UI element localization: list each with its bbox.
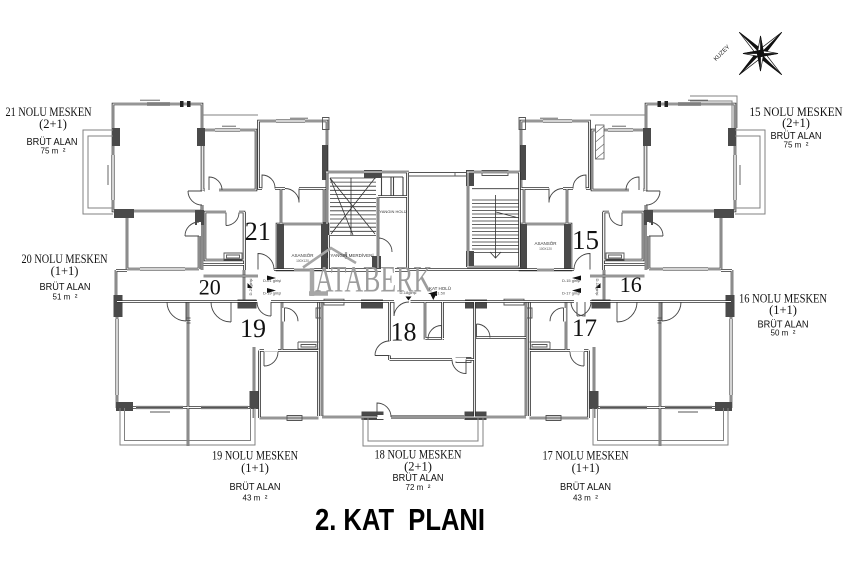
svg-text:15: 15 (572, 225, 599, 255)
svg-text:D-19 girişi: D-19 girişi (263, 291, 281, 296)
svg-text:19: 19 (240, 314, 266, 343)
svg-text:43 m ²: 43 m ² (243, 494, 268, 503)
svg-text:2. KAT PLANI: 2. KAT PLANI (315, 502, 485, 537)
svg-text:BRÜT ALAN: BRÜT ALAN (230, 481, 281, 493)
svg-text:YANGIN HOLÜ: YANGIN HOLÜ (379, 209, 406, 214)
svg-text:18: 18 (391, 318, 417, 347)
svg-text:ASANSÖR: ASANSÖR (534, 240, 557, 246)
svg-text:D-20girişi: D-20girişi (248, 278, 253, 295)
svg-text:21: 21 (245, 217, 271, 246)
svg-text:43 m ²: 43 m ² (573, 494, 598, 503)
svg-text:(1+1): (1+1) (51, 264, 79, 278)
svg-text:20: 20 (199, 275, 221, 300)
svg-text:KUZEY: KUZEY (713, 44, 731, 62)
svg-text:17: 17 (572, 315, 597, 342)
svg-text:(2+1): (2+1) (39, 117, 67, 131)
svg-text:(1+1): (1+1) (572, 461, 600, 475)
svg-text:100X120: 100X120 (539, 247, 552, 251)
svg-text:(1+1): (1+1) (241, 461, 269, 475)
svg-text:D-17 girişi: D-17 girişi (562, 291, 580, 296)
svg-text:ASANSÖR: ASANSÖR (291, 252, 314, 258)
svg-text:D-16girişi: D-16girişi (595, 279, 600, 296)
svg-text:BRÜT ALAN: BRÜT ALAN (40, 281, 91, 293)
svg-text:(1+1): (1+1) (769, 303, 797, 317)
svg-text:50 m ²: 50 m ² (771, 329, 796, 338)
svg-text:16: 16 (620, 272, 642, 297)
svg-text:51 m ²: 51 m ² (53, 293, 78, 302)
svg-text:(2+1): (2+1) (782, 116, 810, 130)
svg-text:72 m ²: 72 m ² (406, 483, 431, 492)
svg-text:75 m ²: 75 m ² (784, 141, 809, 150)
svg-text:100X120: 100X120 (296, 259, 309, 263)
svg-text:BRÜT ALAN: BRÜT ALAN (560, 481, 611, 493)
svg-text:+1.50: +1.50 (435, 291, 446, 296)
svg-text:YANGIN MERDİVENİ: YANGIN MERDİVENİ (330, 252, 373, 258)
svg-text:75 m ²: 75 m ² (41, 147, 66, 156)
svg-text:D-21 girişi: D-21 girişi (263, 278, 281, 283)
svg-text:D-15 girişi: D-15 girişi (562, 278, 580, 283)
svg-text:D-18girişi: D-18girişi (400, 290, 417, 295)
